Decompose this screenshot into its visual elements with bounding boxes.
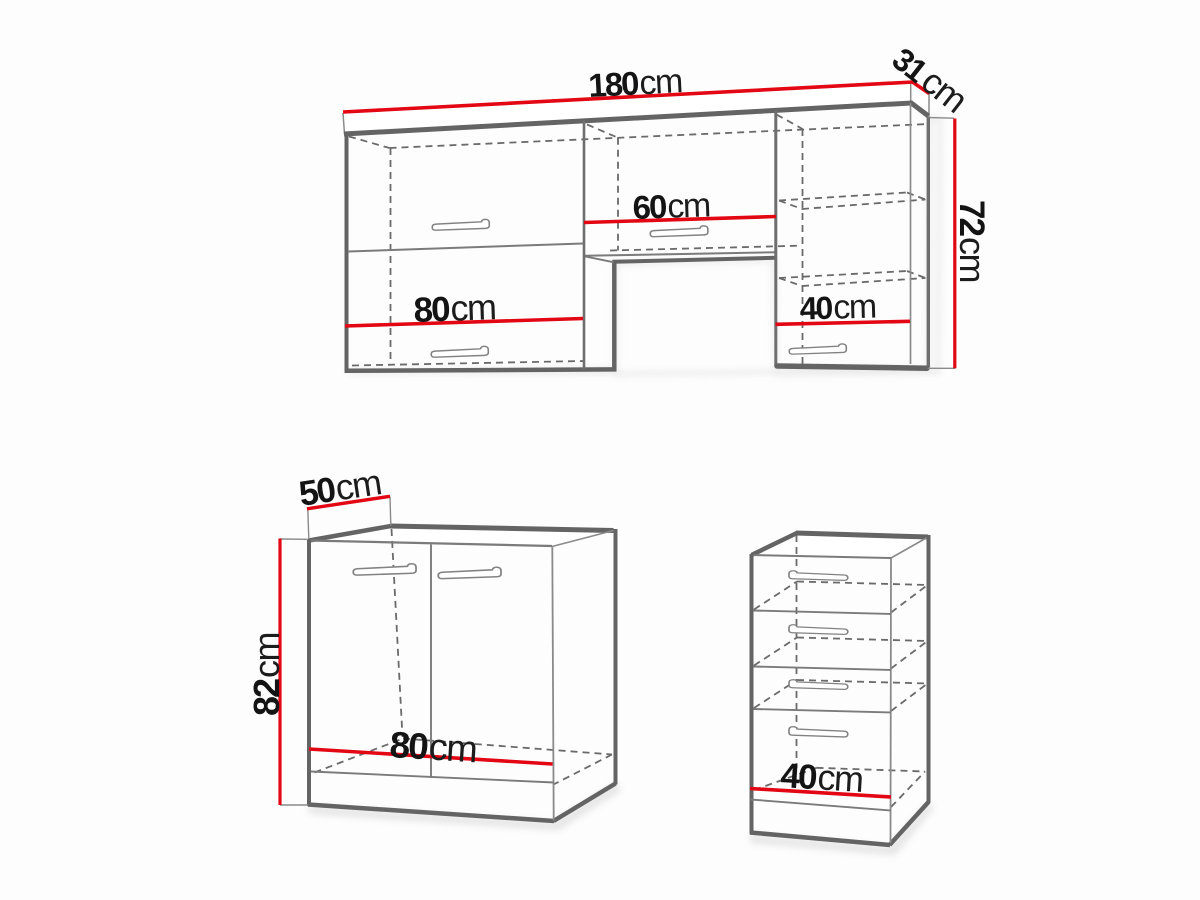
svg-text:80cm: 80cm bbox=[413, 286, 496, 330]
svg-text:40cm: 40cm bbox=[780, 754, 864, 800]
svg-text:180cm: 180cm bbox=[587, 62, 682, 105]
svg-text:72cm: 72cm bbox=[952, 200, 993, 282]
svg-text:82cm: 82cm bbox=[246, 633, 287, 716]
svg-text:40cm: 40cm bbox=[799, 288, 876, 328]
svg-text:60cm: 60cm bbox=[632, 186, 710, 227]
svg-text:80cm: 80cm bbox=[388, 724, 477, 771]
